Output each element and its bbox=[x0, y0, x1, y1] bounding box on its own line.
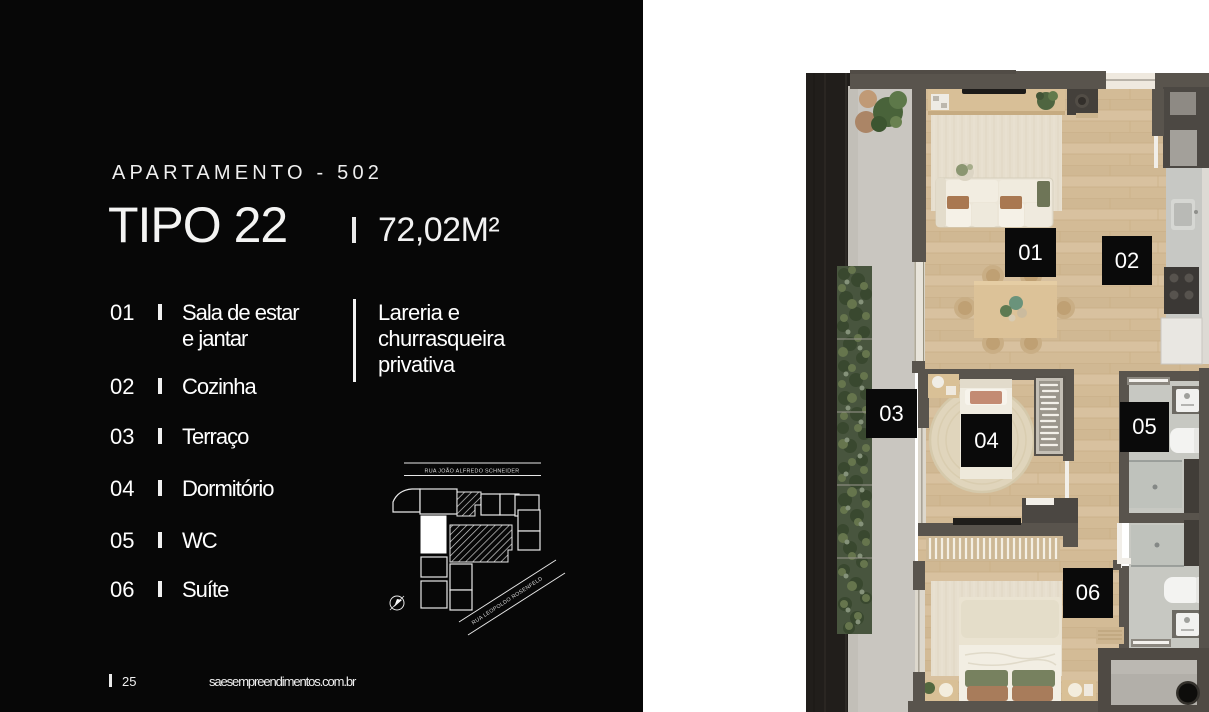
svg-text:03: 03 bbox=[879, 401, 903, 426]
svg-text:06: 06 bbox=[1076, 580, 1100, 605]
svg-text:02: 02 bbox=[1115, 248, 1139, 273]
svg-text:04: 04 bbox=[974, 428, 998, 453]
svg-text:01: 01 bbox=[1018, 240, 1042, 265]
svg-text:05: 05 bbox=[1132, 414, 1156, 439]
